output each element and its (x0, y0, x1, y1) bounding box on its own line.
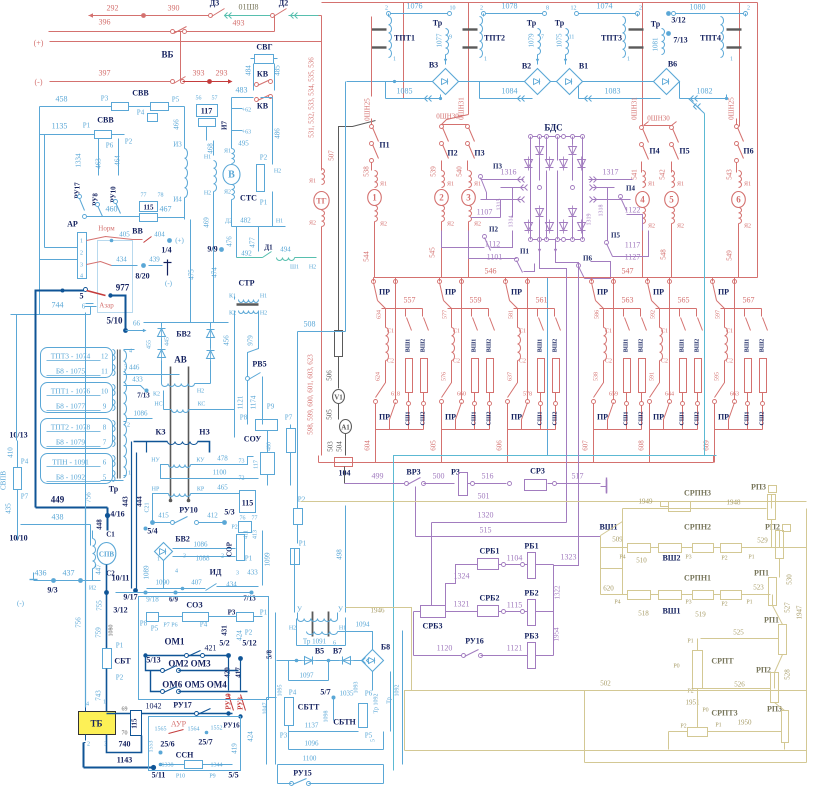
svg-text:Р9: Р9 (267, 403, 275, 411)
svg-text:Я1: Я1 (677, 182, 684, 188)
svg-text:493: 493 (233, 19, 245, 28)
svg-text:ВШ1: ВШ1 (662, 607, 680, 616)
svg-text:ВШ2: ВШ2 (487, 339, 493, 353)
svg-text:1086: 1086 (194, 541, 209, 549)
svg-text:Б8 - 1077: Б8 - 1077 (56, 402, 86, 411)
svg-text:505: 505 (326, 409, 334, 420)
svg-text:ПР: ПР (597, 288, 608, 297)
svg-text:ВШ2: ВШ2 (695, 339, 701, 353)
svg-text:5/13: 5/13 (146, 656, 160, 665)
svg-text:+63: +63 (242, 130, 251, 136)
svg-text:РВ5: РВ5 (252, 360, 266, 369)
svg-text:Н1: Н1 (204, 155, 211, 161)
svg-text:1553: 1553 (149, 741, 155, 753)
svg-text:5: 5 (669, 195, 674, 205)
svg-text:495: 495 (238, 140, 249, 148)
svg-text:578: 578 (523, 392, 532, 398)
svg-text:494: 494 (280, 246, 291, 254)
svg-text:К2: К2 (153, 392, 160, 398)
svg-text:ПР: ПР (653, 413, 664, 422)
svg-text:598, 599, 600, 601, 603, 623: 598, 599, 600, 601, 603, 623 (307, 354, 315, 435)
svg-text:СБТН: СБТН (333, 718, 356, 727)
svg-text:РП2: РП2 (756, 666, 771, 675)
svg-text:ВШ1: ВШ1 (745, 339, 751, 353)
svg-text:4: 4 (640, 195, 645, 205)
svg-text:ПР: ПР (597, 413, 608, 422)
svg-text:ПР: ПР (511, 288, 522, 297)
svg-text:9/9: 9/9 (207, 245, 217, 254)
svg-text:563: 563 (622, 296, 634, 305)
svg-text:660: 660 (457, 392, 466, 398)
svg-text:01Ш8: 01Ш8 (238, 3, 258, 12)
svg-text:486: 486 (274, 128, 282, 139)
svg-text:НУ: НУ (151, 458, 160, 464)
svg-text:ПР: ПР (718, 288, 729, 297)
svg-text:404: 404 (154, 231, 165, 239)
svg-text:8: 8 (546, 6, 549, 12)
svg-text:Р1: Р1 (83, 122, 91, 130)
svg-text:1954: 1954 (553, 627, 561, 642)
svg-text:1949: 1949 (639, 498, 654, 506)
svg-text:4: 4 (80, 274, 83, 280)
svg-text:ПР: ПР (445, 413, 456, 422)
svg-text:+62: +62 (242, 108, 251, 114)
svg-text:620: 620 (603, 585, 614, 593)
svg-text:С1: С1 (106, 531, 115, 539)
svg-text:ССН: ССН (176, 751, 195, 760)
svg-text:Я1: Я1 (380, 182, 387, 188)
svg-text:И2: И2 (89, 586, 96, 592)
svg-text:Р3: Р3 (685, 555, 691, 561)
svg-text:Я2: Я2 (648, 224, 655, 230)
svg-text:Р4: Р4 (200, 621, 208, 629)
svg-text:СВПВ: СВПВ (0, 471, 8, 490)
svg-text:1092: 1092 (395, 685, 401, 697)
svg-text:НС: НС (154, 402, 162, 408)
svg-text:759: 759 (95, 627, 103, 638)
svg-text:БДС: БДС (544, 123, 562, 133)
svg-text:1121: 1121 (237, 395, 245, 409)
svg-text:9/3: 9/3 (47, 586, 57, 595)
svg-text:11: 11 (101, 368, 108, 376)
svg-text:Н2: Н2 (289, 626, 296, 632)
svg-text:460: 460 (106, 205, 118, 214)
svg-text:С2: С2 (661, 359, 668, 365)
svg-text:Д2: Д2 (225, 219, 232, 225)
svg-text:8: 8 (103, 424, 107, 432)
svg-text:В: В (228, 170, 235, 181)
svg-text:Н1: Н1 (276, 219, 283, 225)
svg-text:СШ2: СШ2 (421, 412, 427, 426)
svg-text:Р1: Р1 (245, 555, 253, 563)
svg-text:436: 436 (35, 569, 47, 578)
svg-text:528: 528 (784, 669, 792, 680)
svg-text:СОР: СОР (226, 541, 234, 557)
svg-text:СШ2: СШ2 (760, 412, 766, 426)
svg-text:4/16: 4/16 (110, 510, 124, 519)
svg-text:1100: 1100 (303, 755, 317, 763)
svg-text:СВВ: СВВ (132, 89, 149, 98)
svg-text:Р7: Р7 (21, 493, 29, 501)
svg-text:424: 424 (247, 731, 255, 742)
svg-text:7/13: 7/13 (673, 36, 687, 45)
svg-text:Р1: Р1 (260, 609, 268, 617)
svg-text:Ш1: Ш1 (290, 265, 299, 271)
svg-text:1321: 1321 (454, 600, 470, 609)
svg-text:618: 618 (391, 392, 400, 398)
svg-text:9: 9 (103, 403, 107, 411)
svg-text:1319: 1319 (587, 214, 593, 226)
svg-text:Н2: Н2 (197, 389, 204, 395)
svg-text:592: 592 (651, 310, 657, 319)
svg-text:740: 740 (119, 740, 131, 749)
svg-text:1948: 1948 (727, 499, 742, 507)
svg-text:П5: П5 (611, 232, 620, 240)
svg-text:ВШ2: ВШ2 (760, 339, 766, 353)
svg-text:634: 634 (377, 310, 383, 319)
svg-text:604: 604 (364, 440, 372, 451)
svg-text:Р4: Р4 (137, 109, 145, 117)
svg-text:12: 12 (101, 353, 109, 361)
svg-text:7: 7 (541, 35, 544, 41)
svg-text:561: 561 (536, 296, 548, 305)
svg-text:5/11: 5/11 (152, 771, 166, 780)
svg-text:Я2: Я2 (309, 221, 316, 227)
svg-text:РП3: РП3 (767, 705, 782, 714)
svg-text:2: 2 (480, 6, 483, 12)
svg-text:10/10: 10/10 (9, 534, 27, 543)
svg-text:РУ16: РУ16 (223, 722, 240, 730)
svg-text:77: 77 (252, 516, 258, 522)
svg-text:АВ: АВ (174, 355, 187, 365)
svg-text:Р2: Р2 (245, 629, 253, 637)
svg-text:1089: 1089 (143, 565, 151, 580)
svg-text:597: 597 (716, 310, 722, 319)
svg-text:СШ2: СШ2 (487, 412, 493, 426)
svg-text:Я1: Я1 (309, 179, 316, 185)
svg-text:АР: АР (67, 220, 78, 229)
svg-text:10: 10 (101, 388, 109, 396)
svg-text:1074: 1074 (597, 2, 613, 11)
svg-text:ВШ2: ВШ2 (553, 339, 559, 353)
svg-text:5/10: 5/10 (106, 316, 123, 326)
svg-text:С2: С2 (387, 359, 394, 365)
svg-text:606: 606 (496, 440, 504, 451)
svg-text:Р9: Р9 (209, 774, 215, 780)
svg-text:ПР: ПР (379, 413, 390, 422)
svg-text:644: 644 (665, 392, 674, 398)
svg-text:3: 3 (236, 571, 239, 577)
svg-text:8/20: 8/20 (135, 272, 149, 281)
svg-text:455: 455 (147, 340, 153, 349)
svg-text:Р6: Р6 (106, 142, 114, 150)
svg-text:5/8: 5/8 (266, 650, 274, 659)
svg-text:В7: В7 (333, 647, 342, 656)
svg-text:КУ: КУ (196, 458, 205, 464)
svg-text:(-): (-) (17, 600, 25, 608)
svg-text:567: 567 (743, 296, 755, 305)
svg-text:Тр 1091: Тр 1091 (303, 638, 327, 646)
svg-text:РБ3: РБ3 (524, 632, 538, 641)
svg-text:12: 12 (571, 6, 577, 12)
svg-text:517: 517 (572, 472, 584, 481)
svg-text:1320: 1320 (478, 511, 494, 520)
svg-text:Б8 - 1079: Б8 - 1079 (56, 438, 86, 447)
svg-text:419: 419 (231, 743, 239, 754)
svg-text:506: 506 (326, 370, 334, 381)
svg-text:439: 439 (149, 256, 160, 264)
svg-text:Я1: Я1 (474, 182, 481, 188)
svg-text:663: 663 (730, 392, 739, 398)
svg-text:2: 2 (127, 423, 130, 429)
svg-text:(-): (-) (35, 78, 43, 87)
svg-text:117: 117 (254, 460, 260, 469)
svg-text:ВШ2: ВШ2 (639, 339, 645, 353)
svg-text:1047: 1047 (263, 703, 269, 715)
svg-text:ПР: ПР (653, 288, 664, 297)
svg-text:ВШ2: ВШ2 (421, 339, 427, 353)
svg-text:КР: КР (197, 487, 205, 493)
svg-text:539: 539 (430, 166, 438, 177)
svg-text:Р3: Р3 (228, 609, 236, 617)
svg-text:СТР: СТР (239, 279, 255, 288)
svg-text:СОУ: СОУ (244, 435, 262, 444)
svg-text:482: 482 (240, 217, 251, 225)
svg-text:ВШ2: ВШ2 (662, 554, 680, 563)
svg-text:ВШ1: ВШ1 (472, 339, 478, 353)
svg-text:434: 434 (116, 256, 127, 264)
svg-text:3/12: 3/12 (113, 606, 127, 615)
svg-text:ПР: ПР (511, 413, 522, 422)
svg-text:Р2: Р2 (116, 674, 124, 682)
svg-text:523: 523 (753, 584, 764, 592)
svg-text:659: 659 (609, 392, 618, 398)
svg-text:ТПТ1: ТПТ1 (394, 34, 415, 43)
svg-text:Тр 1092: Тр 1092 (374, 694, 380, 714)
svg-text:ОМ1: ОМ1 (165, 637, 185, 647)
svg-text:2: 2 (385, 6, 388, 12)
svg-text:СШ2: СШ2 (639, 412, 645, 426)
svg-text:476: 476 (226, 236, 234, 247)
svg-text:7: 7 (103, 439, 107, 447)
svg-text:1950: 1950 (738, 719, 753, 727)
svg-text:4: 4 (86, 702, 89, 708)
svg-text:979: 979 (247, 335, 255, 346)
svg-text:1096: 1096 (305, 740, 320, 748)
svg-text:1318: 1318 (599, 205, 605, 217)
svg-text:Р3: Р3 (280, 732, 288, 740)
svg-text:1: 1 (80, 239, 83, 245)
svg-text:ВШ1: ВШ1 (538, 339, 544, 353)
svg-text:(-): (-) (165, 280, 173, 288)
svg-text:ТБ: ТБ (91, 719, 103, 729)
svg-text:1314: 1314 (509, 216, 515, 228)
svg-text:1317: 1317 (603, 168, 619, 177)
svg-text:448: 448 (96, 519, 104, 530)
svg-text:586: 586 (595, 310, 601, 319)
svg-text:1093: 1093 (354, 682, 360, 694)
svg-text:525: 525 (733, 629, 744, 637)
svg-text:П1: П1 (520, 248, 529, 256)
svg-text:В2: В2 (522, 62, 531, 71)
svg-text:ВШ1: ВШ1 (624, 339, 630, 353)
svg-text:РП1: РП1 (764, 616, 779, 625)
svg-text:1121: 1121 (507, 644, 523, 653)
svg-text:547: 547 (622, 267, 634, 276)
svg-text:76: 76 (240, 516, 246, 522)
svg-text:Р2: Р2 (680, 724, 686, 730)
svg-text:ТГ: ТГ (316, 197, 326, 206)
svg-text:СШ2: СШ2 (695, 412, 701, 426)
svg-text:1564: 1564 (188, 727, 200, 733)
svg-text:И4: И4 (173, 196, 182, 204)
svg-text:57: 57 (212, 96, 218, 102)
svg-text:77: 77 (141, 193, 147, 199)
svg-text:292: 292 (107, 4, 119, 13)
svg-text:412: 412 (207, 512, 218, 520)
svg-text:10/13: 10/13 (9, 431, 27, 440)
svg-text:1082: 1082 (697, 87, 713, 96)
svg-text:7/13: 7/13 (243, 595, 256, 603)
svg-text:1338: 1338 (162, 763, 174, 769)
svg-text:И7: И7 (221, 121, 229, 130)
svg-text:1107: 1107 (477, 208, 493, 217)
svg-text:507: 507 (328, 150, 336, 161)
svg-text:498: 498 (336, 549, 344, 560)
svg-text:475: 475 (188, 269, 196, 280)
svg-text:1: 1 (484, 57, 487, 63)
svg-text:3: 3 (80, 263, 83, 269)
svg-text:БВ2: БВ2 (176, 330, 191, 339)
svg-text:Р2: Р2 (298, 496, 306, 504)
svg-text:1094: 1094 (356, 621, 371, 629)
svg-text:Я2: Я2 (474, 222, 481, 228)
svg-text:543: 543 (726, 169, 734, 180)
svg-text:69: 69 (122, 707, 128, 713)
svg-text:Н2: Н2 (309, 265, 316, 271)
svg-text:78: 78 (158, 193, 164, 199)
svg-text:1077: 1077 (436, 33, 444, 48)
svg-text:1: 1 (157, 557, 160, 563)
svg-text:СБТТ: СБТТ (298, 703, 320, 712)
svg-text:СВГ: СВГ (256, 43, 272, 52)
svg-text:Б8 - 1075: Б8 - 1075 (56, 367, 86, 376)
svg-text:П4: П4 (649, 147, 659, 156)
svg-text:1565: 1565 (155, 727, 167, 733)
svg-text:1042: 1042 (146, 702, 162, 711)
svg-text:393: 393 (193, 69, 205, 78)
svg-text:СРБ3: СРБ3 (423, 622, 443, 631)
svg-text:ТПТ4: ТПТ4 (700, 34, 721, 43)
svg-text:2: 2 (80, 251, 83, 257)
svg-text:СШ1: СШ1 (472, 412, 478, 426)
svg-text:545: 545 (429, 247, 437, 258)
svg-text:Тр: Тр (109, 485, 119, 494)
svg-text:1101: 1101 (487, 253, 503, 262)
svg-text:Я2: Я2 (677, 224, 684, 230)
svg-text:В6: В6 (668, 60, 677, 69)
svg-text:9: 9 (449, 35, 452, 41)
svg-text:503: 503 (327, 441, 335, 452)
svg-text:1143: 1143 (117, 756, 133, 765)
svg-text:5: 5 (80, 292, 84, 301)
svg-text:СШ1: СШ1 (624, 412, 630, 426)
svg-text:Д2: Д2 (279, 0, 289, 8)
svg-text:В5: В5 (315, 647, 324, 656)
svg-text:(+): (+) (34, 39, 44, 48)
svg-text:БВ2: БВ2 (175, 535, 190, 544)
svg-text:1100: 1100 (213, 469, 227, 477)
svg-text:595: 595 (715, 372, 721, 381)
svg-text:518: 518 (638, 610, 649, 618)
svg-text:Н2: Н2 (274, 169, 281, 175)
svg-text:СШ1: СШ1 (745, 412, 751, 426)
svg-text:1322: 1322 (554, 585, 562, 600)
svg-text:538: 538 (594, 372, 600, 381)
svg-text:Азар: Азар (99, 302, 114, 310)
svg-text:Н1: Н1 (260, 294, 267, 300)
svg-text:1090: 1090 (156, 579, 171, 587)
svg-text:3: 3 (466, 193, 471, 203)
svg-text:1115: 1115 (507, 601, 522, 610)
svg-text:Р7: Р7 (285, 414, 293, 422)
svg-text:549: 549 (726, 250, 734, 261)
svg-text:КВ: КВ (257, 70, 269, 79)
svg-text:V1: V1 (334, 394, 343, 402)
svg-text:Р8: Р8 (240, 414, 248, 422)
svg-text:НР: НР (152, 487, 160, 493)
svg-text:508: 508 (304, 320, 316, 329)
svg-text:ВБ: ВБ (162, 50, 174, 60)
svg-text:Я2: Я2 (380, 222, 387, 228)
svg-text:1078: 1078 (502, 2, 518, 11)
svg-text:СРБ1: СРБ1 (480, 547, 500, 556)
svg-text:70: 70 (122, 731, 128, 737)
svg-text:Р0: Р0 (702, 708, 708, 714)
svg-text:Я1: Я1 (648, 182, 655, 188)
svg-text:1323: 1323 (561, 553, 577, 562)
svg-text:3/12: 3/12 (671, 16, 685, 25)
svg-text:115: 115 (143, 204, 154, 212)
svg-text:ТПН - 1091: ТПН - 1091 (52, 458, 89, 467)
svg-text:П6: П6 (743, 147, 753, 156)
svg-text:541: 541 (631, 169, 639, 180)
svg-text:1099: 1099 (264, 552, 272, 567)
svg-text:581: 581 (509, 310, 515, 319)
svg-text:ПР: ПР (718, 413, 729, 422)
svg-text:РБ1: РБ1 (524, 542, 538, 551)
svg-text:465: 465 (217, 484, 228, 492)
svg-text:СБТ: СБТ (114, 657, 131, 666)
svg-text:1135: 1135 (52, 122, 68, 131)
svg-text:Р1: Р1 (715, 723, 721, 729)
svg-text:456: 456 (223, 335, 231, 346)
svg-text:433: 433 (132, 376, 143, 384)
svg-text:СШ2: СШ2 (553, 412, 559, 426)
svg-text:56: 56 (196, 96, 202, 102)
svg-text:В1: В1 (579, 62, 588, 71)
svg-text:СР3: СР3 (530, 467, 545, 476)
svg-text:115: 115 (242, 499, 254, 508)
svg-text:73: 73 (239, 459, 245, 465)
svg-text:4: 4 (175, 569, 178, 575)
svg-text:Р1: Р1 (260, 199, 268, 207)
svg-text:А1: А1 (341, 424, 350, 432)
svg-text:Я1: Я1 (744, 182, 751, 188)
svg-text:1: 1 (103, 700, 106, 706)
svg-text:421: 421 (205, 644, 217, 653)
svg-text:1083: 1083 (605, 87, 621, 96)
